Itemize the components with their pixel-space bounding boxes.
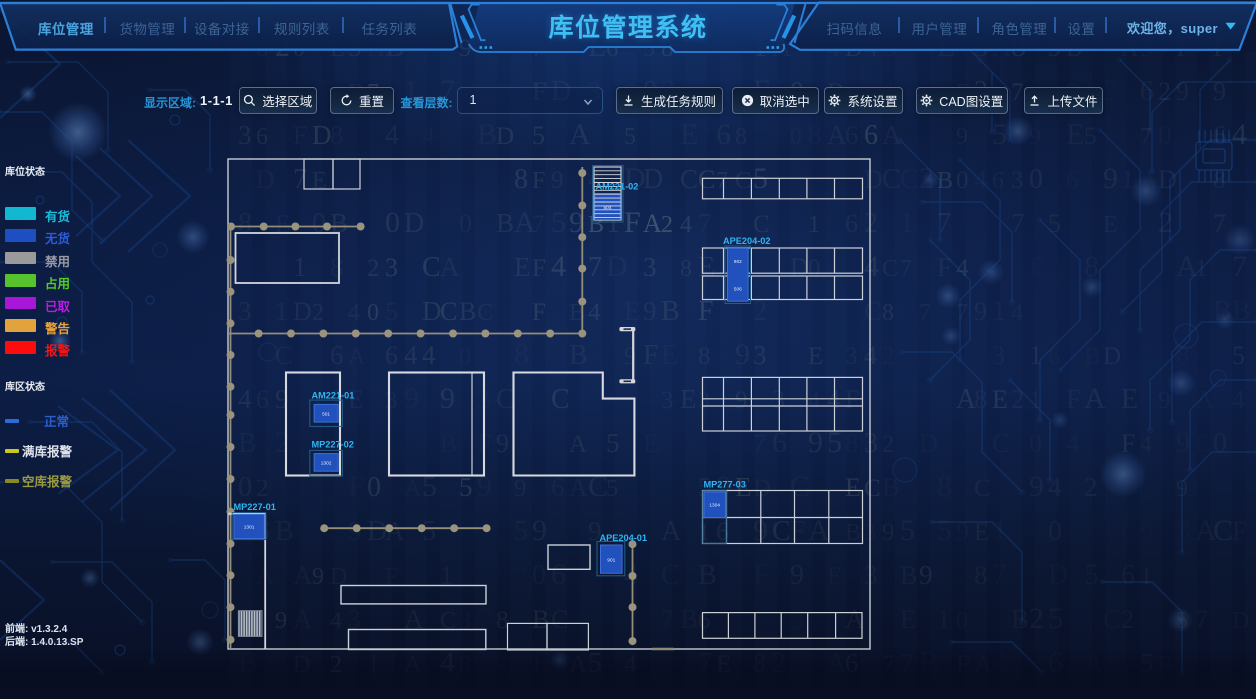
- svg-text:501: 501: [322, 412, 330, 418]
- svg-text:902: 902: [734, 259, 742, 265]
- svg-text:901: 901: [607, 558, 615, 564]
- svg-text:504: 504: [603, 205, 611, 211]
- svg-text:APE204-02: APE204-02: [723, 236, 771, 246]
- svg-text:APE204-01: APE204-01: [600, 533, 648, 543]
- svg-text:506: 506: [734, 287, 742, 293]
- svg-text:AM221-02: AM221-02: [596, 182, 639, 192]
- svg-text:1302: 1302: [321, 461, 332, 467]
- svg-text:MP227-01: MP227-01: [234, 502, 276, 512]
- svg-text:AM221-01: AM221-01: [312, 390, 355, 400]
- svg-text:MP227-02: MP227-02: [312, 440, 354, 450]
- svg-text:MP277-03: MP277-03: [704, 479, 746, 489]
- svg-text:1301: 1301: [244, 525, 255, 531]
- svg-text:1304: 1304: [709, 503, 720, 509]
